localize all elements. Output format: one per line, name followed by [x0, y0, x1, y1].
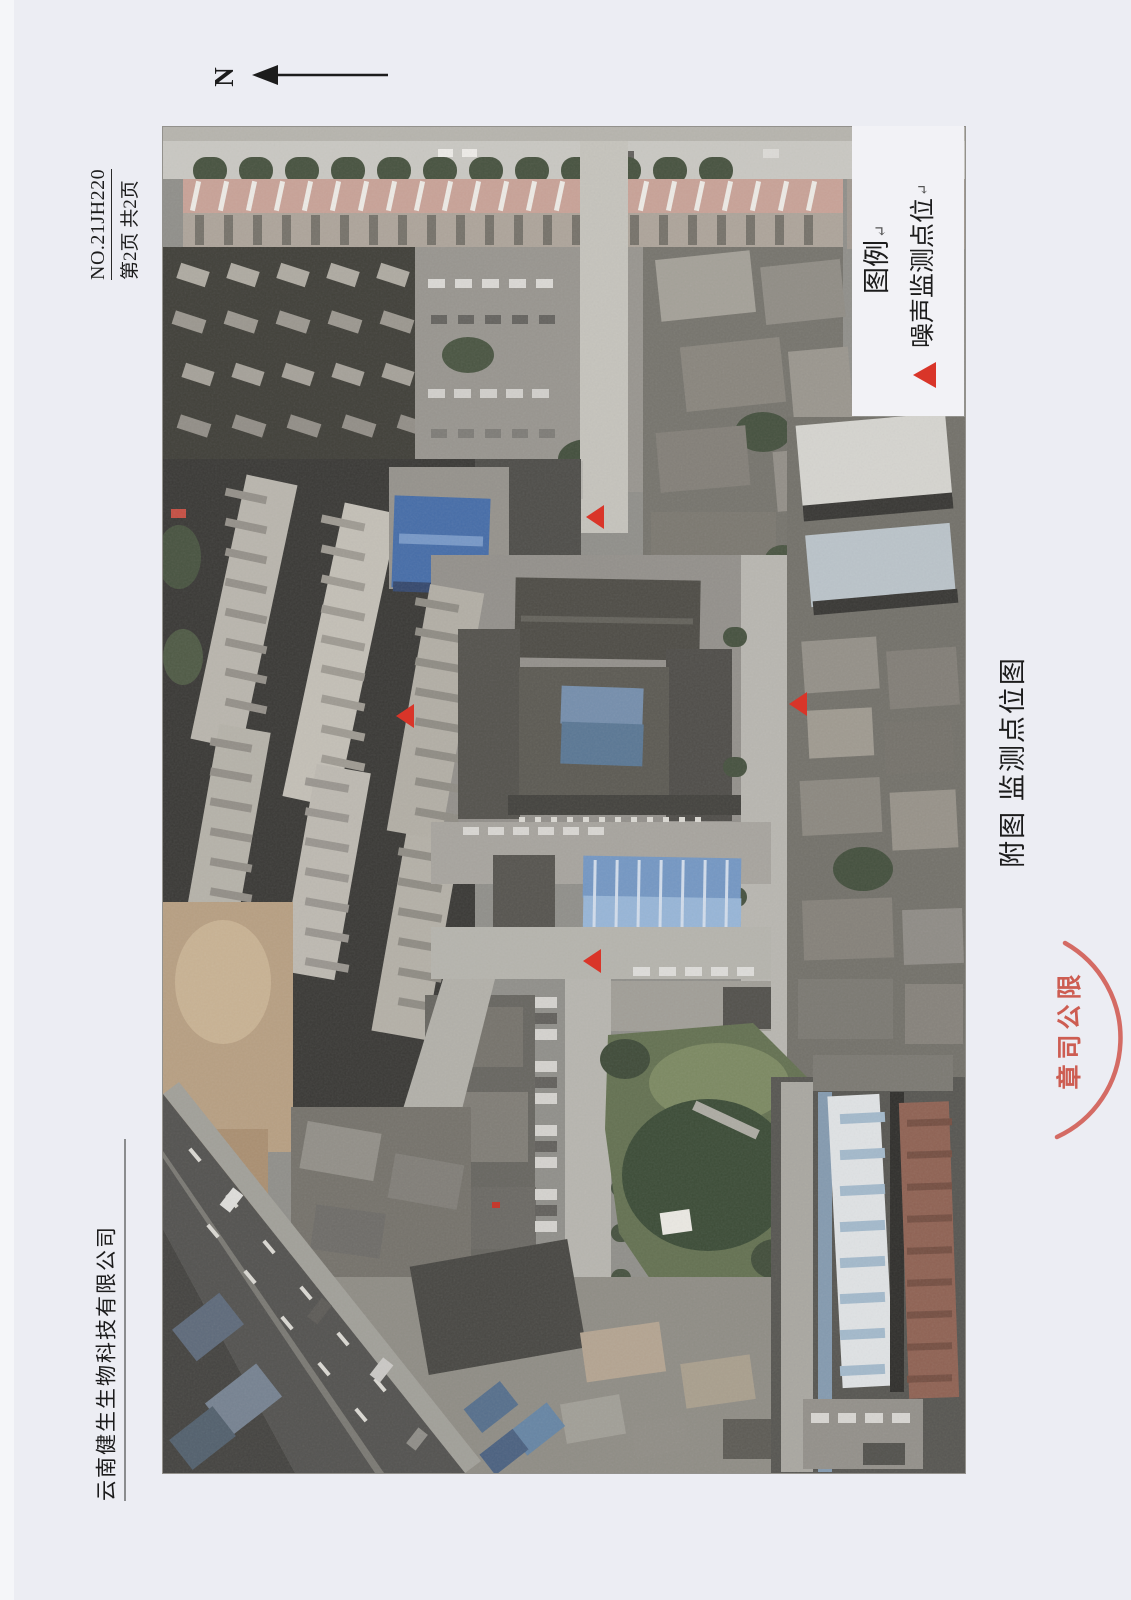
map-light-veil: [163, 127, 965, 1473]
return-mark-icon: ↵: [872, 224, 890, 238]
satellite-map: [163, 127, 965, 1473]
legend-title: 图例↵: [860, 126, 898, 294]
scanned-report-page: { "header": { "doc_no": "NO.21JH220", "p…: [0, 0, 1131, 1600]
noise-point-marker-icon: [913, 362, 936, 388]
company-seal-char: 限: [1056, 972, 1086, 1002]
legend-box: 图例↵ 噪声监测点位 ↵: [852, 126, 964, 416]
company-seal-char: 章: [1056, 1062, 1086, 1092]
legend-inner: 图例↵ 噪声监测点位 ↵: [852, 126, 964, 416]
figure-caption: 附图 监测点位图: [991, 650, 1033, 875]
legend-item-noise-point: 噪声监测点位 ↵: [904, 126, 944, 388]
document-number: NO.21JH220: [87, 169, 112, 280]
small-red-mark: [492, 1202, 500, 1208]
return-mark-icon: ↵: [904, 183, 944, 196]
satellite-map-svg: [163, 127, 965, 1473]
north-arrow-icon: [248, 58, 393, 92]
legend-item-label: 噪声监测点位: [904, 198, 944, 348]
report-header: NO.21JH220 第2页 共2页: [87, 130, 143, 280]
page-indicator: 第2页 共2页: [115, 130, 142, 280]
scan-edge: [0, 0, 14, 1600]
company-seal-char: 公: [1056, 1002, 1086, 1032]
company-seal-text: 限公司章: [1056, 972, 1088, 1092]
company-seal-char: 司: [1056, 1032, 1086, 1062]
north-label: N: [209, 60, 239, 94]
company-name: 云南健生生物科技有限公司: [91, 1139, 126, 1501]
